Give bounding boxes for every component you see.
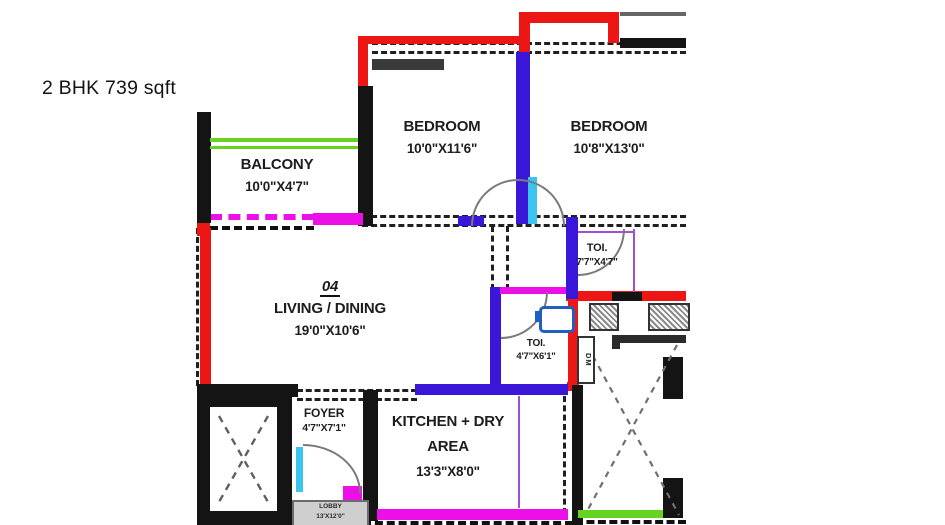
balcony-label: BALCONY 10'0"X4'7" (222, 156, 332, 195)
partition-kitchen-dry (518, 396, 520, 508)
red-duct-right (608, 12, 619, 43)
wall-dashed-bottom-stair (575, 520, 686, 524)
wall-dashed-kitchen-right (563, 396, 566, 514)
green-bottom-strip (578, 510, 663, 518)
living-name: LIVING / DINING (262, 300, 398, 318)
red-wall-top (358, 36, 528, 44)
kitchen-dims: 13'3"X8'0" (388, 464, 508, 480)
magenta-kitchen-bottom (377, 509, 568, 520)
red-duct-left (519, 12, 530, 54)
washbasin-tap-icon (535, 311, 540, 322)
red-duct-top (519, 12, 619, 23)
living-dims: 19'0"X10'6" (262, 323, 398, 339)
living-label: 04 LIVING / DINING 19'0"X10'6" (262, 278, 398, 339)
washbasin-icon (539, 306, 575, 333)
balcony-dashed-black (210, 226, 314, 230)
wall-segment-on-red (612, 292, 642, 301)
gray-line-top-right (620, 12, 686, 16)
toilet-right-dims: 7'7"X4'7" (568, 257, 626, 269)
foyer-dims: 4'7"X7'1" (294, 422, 354, 435)
bedroom1-dims: 10'0"X11'6" (384, 141, 500, 157)
toilet-right-name: TOI. (568, 242, 626, 255)
toilet-mid-dims: 4'7"X6'1" (505, 351, 567, 362)
balcony-railing-line1 (210, 138, 358, 142)
bedroom2-dims: 10'8"X13'0" (549, 141, 669, 157)
red-wall-living-left (200, 228, 211, 385)
toilet-right-label: TOI. 7'7"X4'7" (568, 242, 626, 269)
wall-top-right (620, 38, 686, 48)
kitchen-label: KITCHEN + DRY AREA 13'3"X8'0" (388, 413, 508, 480)
balcony-slider-magenta-dashed (210, 214, 314, 220)
lobby-name: LOBBY (294, 502, 367, 512)
bedroom2-label: BEDROOM 10'8"X13'0" (549, 118, 669, 157)
bedroom1-name: BEDROOM (384, 118, 500, 136)
bedroom1-label: BEDROOM 10'0"X11'6" (384, 118, 500, 157)
foyer-label: FOYER 4'7"X7'1" (294, 406, 354, 435)
red-wall-top-left (358, 44, 368, 86)
kitchen-name-line1: KITCHEN + DRY (388, 413, 508, 431)
duct-box-2 (648, 303, 690, 331)
lobby-box: LOBBY 13'X12'0" (292, 500, 369, 525)
staircase-cross-mark (581, 341, 685, 519)
kitchen-name-line2: AREA (388, 438, 508, 456)
wall-bedroom1-left (358, 86, 373, 226)
toilet-mid-name: TOI. (505, 338, 567, 350)
door-strip-foyer (296, 447, 303, 492)
wall-blue-toilet-mid-left (490, 287, 501, 388)
window-bedroom1 (372, 59, 444, 70)
wall-balcony-left (197, 112, 211, 223)
toilet-mid-label: TOI. 4'7"X6'1" (505, 338, 567, 362)
lobby-dims: 13'X12'0" (294, 512, 367, 522)
floorplan-canvas: 2 BHK 739 sqft (0, 0, 945, 525)
plan-title: 2 BHK 739 sqft (42, 77, 176, 100)
wall-dashed-passage-1 (491, 226, 494, 290)
partition-toilet-right (633, 229, 635, 292)
wall-dashed-bottom-kitchen (363, 521, 573, 525)
door-arc-bedroom1 (471, 179, 565, 226)
wall-dashed-living-left (196, 228, 199, 386)
balcony-name: BALCONY (222, 156, 332, 174)
duct-dm-box: DM (577, 336, 595, 384)
balcony-railing-line2 (210, 146, 358, 149)
duct-box-1 (589, 303, 619, 331)
foyer-name: FOYER (294, 406, 354, 420)
unit-number: 04 (320, 278, 340, 297)
bedroom2-name: BEDROOM (549, 118, 669, 136)
wall-blue-kitchen-top (415, 384, 568, 395)
balcony-dims: 10'0"X4'7" (222, 179, 332, 195)
door-arc-foyer (303, 444, 361, 493)
wall-dashed-kitchen-top (297, 389, 417, 401)
magenta-balcony-panel (313, 213, 363, 225)
wall-dashed-passage-2 (506, 226, 509, 290)
lift-cross-mark (211, 408, 276, 510)
